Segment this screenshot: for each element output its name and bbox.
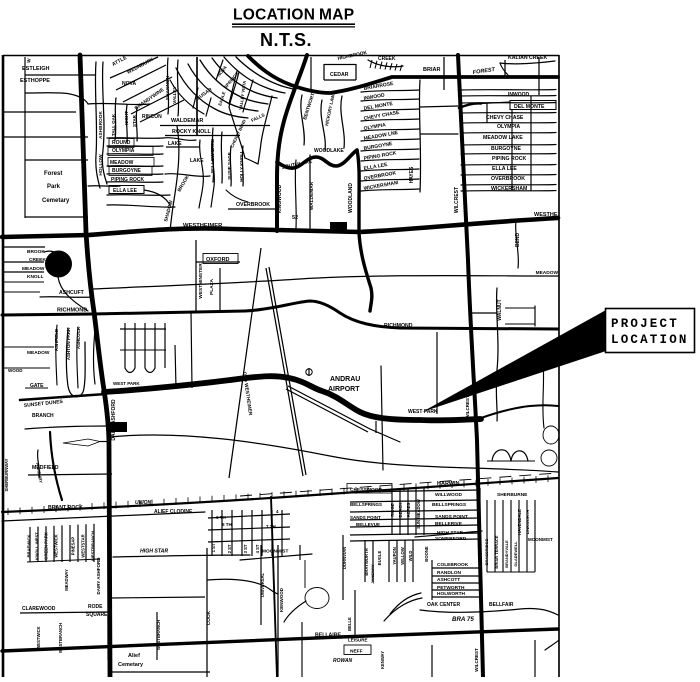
svg-text:ANDRAU: ANDRAU	[330, 376, 360, 383]
svg-text:Forest: Forest	[44, 171, 62, 177]
svg-text:SHANNON: SHANNON	[165, 75, 171, 100]
svg-text:NIGHT: NIGHT	[124, 111, 129, 125]
svg-text:BRANDYVALE: BRANDYVALE	[504, 540, 509, 568]
svg-text:PIPING ROCK: PIPING ROCK	[111, 177, 144, 183]
svg-text:JANEWAY: JANEWAY	[370, 564, 375, 584]
svg-text:WILD: WILD	[408, 551, 413, 562]
svg-text:4 ST: 4 ST	[255, 544, 260, 553]
svg-text:BELLSPRINGS: BELLSPRINGS	[432, 502, 467, 508]
svg-text:NEFF: NEFF	[350, 649, 363, 655]
svg-text:BURGOYNE: BURGOYNE	[491, 146, 522, 152]
svg-text:MEADOW LAKE: MEADOW LAKE	[483, 135, 523, 141]
svg-text:3 ST: 3 ST	[243, 544, 248, 553]
svg-text:CREEK: CREEK	[29, 257, 46, 263]
svg-text:PROJECT: PROJECT	[611, 317, 679, 331]
svg-text:ROCKY KNOLL: ROCKY KNOLL	[172, 129, 212, 135]
svg-text:ELLA LEE: ELLA LEE	[492, 166, 517, 172]
svg-text:MEADWAY: MEADWAY	[64, 569, 69, 591]
svg-text:KALIAN CREEK: KALIAN CREEK	[508, 55, 547, 61]
svg-text:BELLE: BELLE	[347, 617, 352, 631]
svg-text:UNIVERSAL: UNIVERSAL	[260, 572, 265, 597]
svg-text:INWOOD: INWOOD	[508, 92, 529, 98]
svg-text:RINCON: RINCON	[142, 114, 162, 120]
svg-text:BELLERIVE: BELLERIVE	[435, 521, 463, 527]
svg-text:ELLA LEE: ELLA LEE	[113, 188, 138, 194]
svg-text:KENWAY: KENWAY	[380, 651, 385, 669]
svg-text:BRAEWICK: BRAEWICK	[27, 534, 32, 557]
svg-text:GREEN PARK: GREEN PARK	[44, 532, 49, 560]
svg-text:Park: Park	[47, 184, 61, 190]
svg-text:HAVENDALE: HAVENDALE	[517, 509, 522, 535]
svg-text:RICHMOND: RICHMOND	[384, 323, 413, 329]
svg-text:DEL MONTE: DEL MONTE	[514, 104, 545, 110]
svg-text:WESTWICK: WESTWICK	[36, 626, 41, 649]
svg-text:MEADOW: MEADOW	[27, 350, 50, 356]
svg-text:BRAESRIDGE: BRAESRIDGE	[484, 538, 489, 565]
svg-text:ALIEF CLODINE: ALIEF CLODINE	[154, 509, 193, 515]
svg-text:WICKERSHAM: WICKERSHAM	[491, 186, 527, 192]
svg-text:HAYES: HAYES	[409, 166, 415, 183]
svg-text:BRA 75: BRA 75	[452, 616, 474, 623]
svg-text:ASHBROOK: ASHBROOK	[98, 110, 104, 139]
svg-text:COLEBROOK: COLEBROOK	[437, 562, 469, 568]
svg-text:KENWOOD: KENWOOD	[279, 587, 284, 612]
svg-text:KNOLL: KNOLL	[27, 274, 44, 280]
svg-text:CHEVY CHASE: CHEVY CHASE	[486, 115, 524, 121]
svg-text:UNION: UNION	[135, 500, 152, 506]
svg-text:OVERBROOK: OVERBROOK	[236, 202, 270, 208]
svg-text:KINGWOOD: KINGWOOD	[277, 184, 283, 213]
svg-text:DAIRY ASHFORD: DAIRY ASHFORD	[96, 557, 101, 595]
svg-text:WEST PARK: WEST PARK	[408, 409, 438, 415]
svg-text:PIPING ROCK: PIPING ROCK	[492, 156, 527, 162]
svg-text:WOODLAKE: WOODLAKE	[314, 148, 344, 154]
svg-text:ASHFIELD: ASHFIELD	[54, 328, 59, 351]
svg-text:HOLLOW: HOLLOW	[98, 154, 104, 176]
svg-text:WILCREST: WILCREST	[465, 395, 470, 419]
svg-text:NOVA: NOVA	[122, 81, 136, 87]
svg-text:BROOK: BROOK	[27, 249, 45, 255]
svg-text:BRANT ROCK: BRANT ROCK	[48, 505, 83, 511]
svg-text:WALDEMAR: WALDEMAR	[171, 118, 203, 124]
svg-text:CHESSWOOD: CHESSWOOD	[350, 487, 383, 493]
svg-text:SOMERFORD: SOMERFORD	[435, 536, 467, 542]
svg-text:MEADOW: MEADOW	[22, 266, 45, 272]
svg-text:MEADOW: MEADOW	[110, 160, 134, 166]
svg-text:COOK: COOK	[206, 610, 212, 625]
svg-text:AIRPORT: AIRPORT	[328, 386, 360, 393]
svg-text:CREEK: CREEK	[378, 56, 396, 62]
svg-text:BELLFAIR: BELLFAIR	[489, 602, 514, 608]
svg-text:ESTHOPPE: ESTHOPPE	[20, 78, 50, 84]
svg-text:HIGH STAR: HIGH STAR	[140, 549, 168, 555]
svg-text:BURGOYNE: BURGOYNE	[112, 168, 142, 174]
svg-text:WESTSTAR: WESTSTAR	[81, 534, 86, 557]
svg-text:MOONMIST: MOONMIST	[528, 537, 553, 542]
svg-text:OAK CENTER: OAK CENTER	[427, 602, 460, 608]
svg-text:TALL OAK: TALL OAK	[111, 113, 116, 136]
svg-text:CLAREWOOD: CLAREWOOD	[22, 606, 56, 612]
svg-text:ACRES: ACRES	[406, 502, 411, 517]
svg-text:ROUND: ROUND	[112, 140, 131, 146]
svg-text:RODE: RODE	[88, 604, 103, 610]
svg-text:SHERBURNWAY: SHERBURNWAY	[4, 458, 9, 491]
svg-text:OLYMPIA: OLYMPIA	[112, 148, 135, 154]
svg-text:SHERBURNE: SHERBURNE	[497, 492, 528, 498]
svg-text:ASHLOCK: ASHLOCK	[76, 326, 81, 349]
svg-text:Alief: Alief	[128, 653, 140, 659]
svg-text:WESTWICK: WESTWICK	[54, 534, 59, 557]
svg-text:SANDS POINT: SANDS POINT	[435, 514, 468, 520]
svg-text:HOLWORTH: HOLWORTH	[437, 591, 466, 597]
svg-text:N.T.S.: N.T.S.	[260, 30, 312, 50]
svg-text:STAR: STAR	[132, 114, 137, 127]
svg-text:LOCATION: LOCATION	[233, 7, 315, 24]
svg-text:HOLLY KNOLL: HOLLY KNOLL	[239, 150, 244, 182]
svg-text:BUGLE: BUGLE	[377, 550, 382, 565]
svg-text:MEADOW: MEADOW	[536, 270, 559, 276]
svg-text:GLADEWELL: GLADEWELL	[513, 541, 518, 567]
svg-text:WILCREST: WILCREST	[474, 648, 479, 672]
svg-text:YAUPON: YAUPON	[392, 547, 397, 565]
svg-text:7 TH: 7 TH	[266, 524, 276, 529]
svg-text:2 ST: 2 ST	[227, 544, 232, 553]
svg-text:BRIAR TERRACE: BRIAR TERRACE	[494, 535, 499, 568]
svg-text:ESTLEIGH: ESTLEIGH	[22, 66, 50, 72]
svg-text:WILLWOOD: WILLWOOD	[435, 492, 462, 498]
svg-text:GATE: GATE	[30, 383, 44, 389]
svg-text:KNOLL WEST: KNOLL WEST	[35, 532, 40, 560]
svg-text:WALDEMAR: WALDEMAR	[309, 181, 315, 210]
svg-text:CEDAR: CEDAR	[330, 72, 349, 78]
svg-text:ROWAN: ROWAN	[333, 658, 353, 664]
svg-text:Cemetary: Cemetary	[42, 198, 70, 204]
svg-text:LINKWORTH: LINKWORTH	[525, 510, 530, 535]
svg-text:SQUARE: SQUARE	[86, 612, 108, 618]
svg-text:LOCATION: LOCATION	[611, 333, 689, 347]
svg-text:BOONE: BOONE	[424, 546, 429, 562]
svg-text:WOOD: WOOD	[8, 368, 23, 373]
svg-text:WESTMINSTER: WESTMINSTER	[198, 263, 204, 299]
svg-text:ASHCUFT: ASHCUFT	[59, 290, 85, 296]
svg-text:MAP: MAP	[319, 7, 354, 24]
svg-text:WALNUT: WALNUT	[497, 299, 503, 320]
svg-text:DORNVIAN: DORNVIAN	[342, 547, 347, 569]
svg-text:ASHCOTT: ASHCOTT	[437, 577, 460, 583]
svg-text:RIDGE: RIDGE	[390, 503, 395, 516]
svg-text:MOONMIST: MOONMIST	[262, 549, 288, 555]
svg-text:BEND: BEND	[515, 233, 521, 248]
svg-text:SANDS POINT: SANDS POINT	[350, 515, 381, 520]
svg-text:DAIRY ASHFORD: DAIRY ASHFORD	[111, 399, 117, 441]
svg-text:BELLEVUE: BELLEVUE	[356, 522, 380, 527]
svg-text:ASHTON PARK: ASHTON PARK	[66, 327, 71, 360]
svg-text:WESTHEIMER: WESTHEIMER	[183, 223, 223, 229]
svg-text:WEST PARK: WEST PARK	[113, 381, 140, 386]
svg-text:WILLOW: WILLOW	[400, 547, 405, 564]
svg-text:LAKE: LAKE	[168, 141, 182, 147]
svg-text:BRAYWORTH: BRAYWORTH	[364, 548, 369, 575]
svg-text:SUN MEADOW: SUN MEADOW	[416, 499, 421, 529]
svg-text:SUSIE SAGE: SUSIE SAGE	[227, 152, 232, 180]
svg-text:WESTHE: WESTHE	[534, 212, 558, 218]
svg-text:RANDLON: RANDLON	[437, 570, 462, 576]
svg-text:OXFORD: OXFORD	[206, 257, 230, 263]
svg-text:WILLOW LAKE: WILLOW LAKE	[210, 138, 216, 173]
svg-text:WESTBRANCH: WESTBRANCH	[91, 531, 96, 561]
svg-text:BRIAR: BRIAR	[423, 67, 440, 73]
svg-text:PINESAP: PINESAP	[71, 537, 76, 556]
svg-text:RICHMOND: RICHMOND	[57, 308, 87, 314]
svg-text:BRANCH: BRANCH	[32, 413, 54, 419]
svg-text:LAKE: LAKE	[190, 158, 204, 164]
svg-text:OLYMPIA: OLYMPIA	[497, 124, 520, 130]
svg-text:OVERBROOK: OVERBROOK	[491, 176, 525, 182]
svg-text:WOODLAND: WOODLAND	[348, 183, 354, 213]
svg-text:6 TH: 6 TH	[216, 515, 226, 520]
svg-text:Cemetary: Cemetary	[118, 662, 144, 668]
svg-text:PETWORTH: PETWORTH	[437, 585, 465, 591]
svg-text:52: 52	[292, 215, 298, 221]
svg-text:PLAZA: PLAZA	[209, 278, 215, 295]
svg-text:WILCREST: WILCREST	[454, 187, 460, 213]
svg-text:BELLSPRINGS: BELLSPRINGS	[350, 502, 382, 507]
svg-text:1 ST: 1 ST	[211, 543, 216, 552]
svg-text:5 TH: 5 TH	[222, 522, 232, 527]
svg-text:BEACH: BEACH	[398, 503, 403, 518]
